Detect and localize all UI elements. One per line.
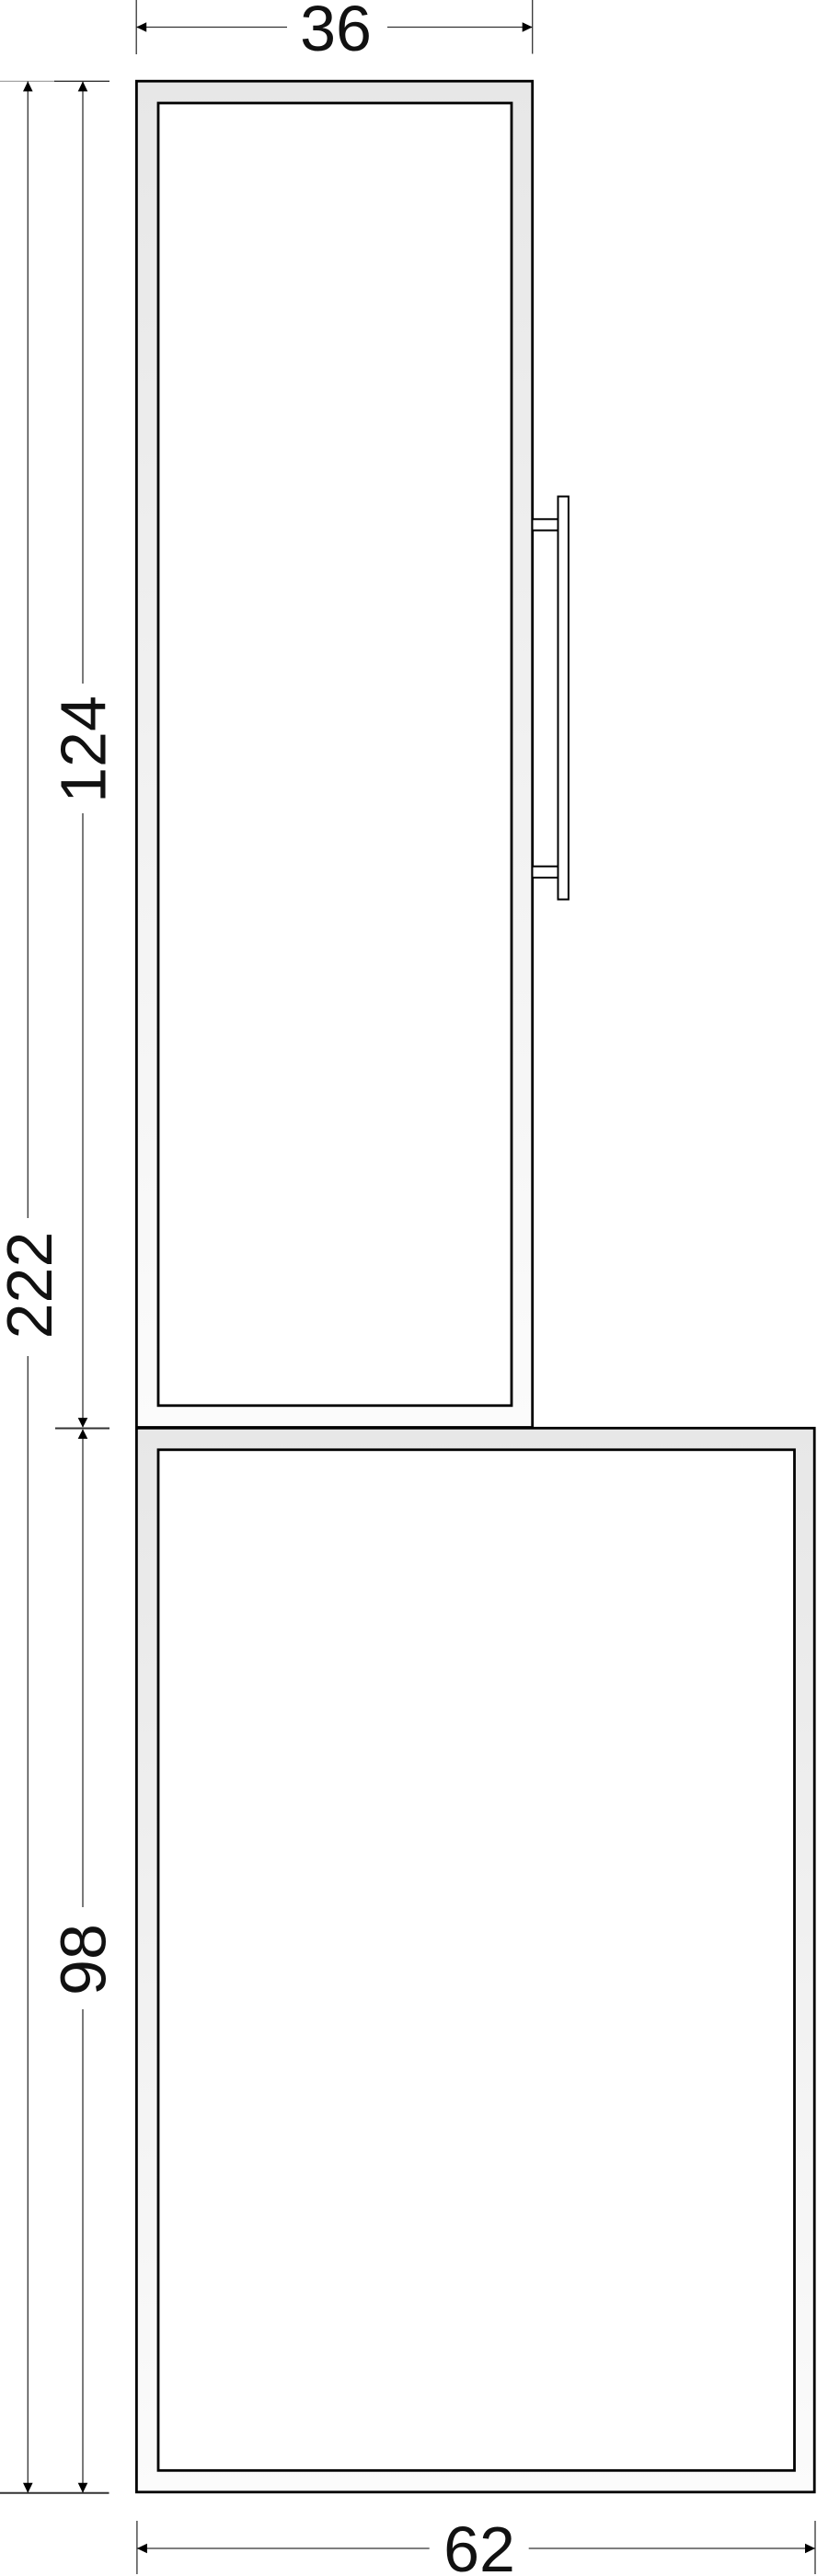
- svg-text:62: 62: [443, 2513, 515, 2576]
- svg-text:36: 36: [300, 0, 372, 64]
- svg-text:98: 98: [47, 1924, 119, 1995]
- svg-text:222: 222: [0, 1232, 65, 1340]
- svg-text:124: 124: [48, 696, 120, 803]
